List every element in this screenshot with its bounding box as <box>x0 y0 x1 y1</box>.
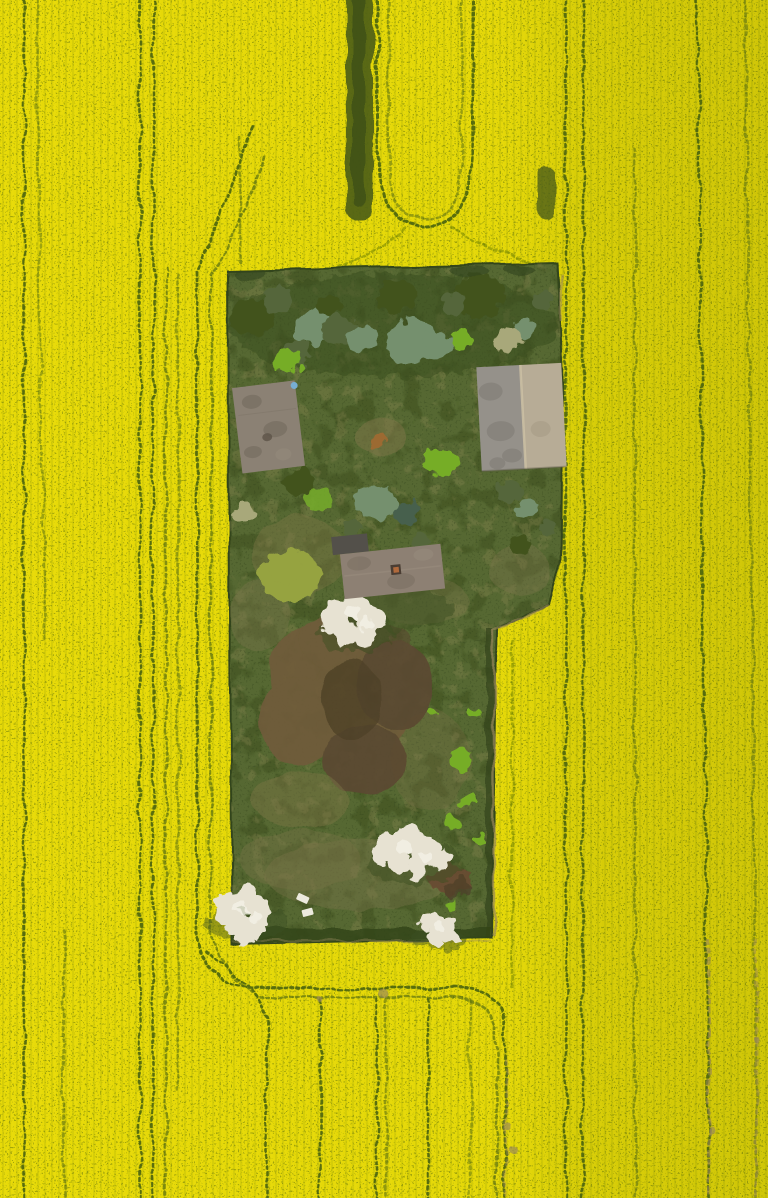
barn-east-roof-east-slope <box>520 363 566 469</box>
shed-chimney-flue <box>393 567 399 573</box>
aerial-photo <box>0 0 768 1198</box>
barn-east <box>476 363 566 471</box>
aerial-photo-stage <box>0 0 768 1198</box>
shed-annex-roof <box>331 533 369 555</box>
barn-west <box>232 380 307 473</box>
grass-patch-top-right <box>537 166 557 218</box>
grass-strip-top-core <box>352 0 365 208</box>
